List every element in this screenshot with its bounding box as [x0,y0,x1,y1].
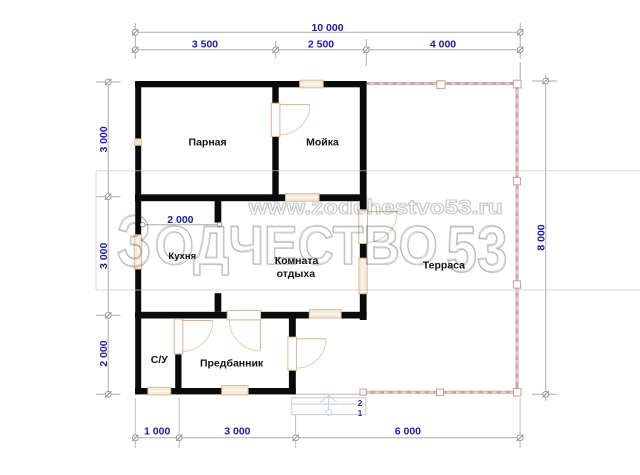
svg-text:З: З [117,202,152,282]
svg-text:8 000: 8 000 [536,224,548,250]
svg-text:2 500: 2 500 [308,39,334,51]
svg-text:53: 53 [446,213,507,285]
svg-text:Кухня: Кухня [168,251,196,262]
svg-text:10 000: 10 000 [311,22,343,34]
svg-text:4 000: 4 000 [430,39,456,51]
svg-text:отдыха: отдыха [277,268,316,280]
svg-text:Терраса: Терраса [423,259,465,271]
svg-text:3 000: 3 000 [98,126,110,152]
svg-text:3 000: 3 000 [224,426,250,438]
svg-text:2: 2 [358,399,363,408]
svg-text:Предбанник: Предбанник [200,358,264,370]
svg-text:6 000: 6 000 [395,426,421,438]
svg-text:Комната: Комната [275,255,319,267]
svg-text:1 000: 1 000 [144,426,170,438]
svg-text:2 000: 2 000 [98,340,110,366]
svg-text:1: 1 [358,409,363,418]
svg-text:С/У: С/У [151,354,169,366]
svg-text:3 500: 3 500 [192,39,218,51]
svg-text:Мойка: Мойка [306,137,339,149]
svg-text:Парная: Парная [189,136,227,148]
svg-text:3 000: 3 000 [98,243,110,269]
